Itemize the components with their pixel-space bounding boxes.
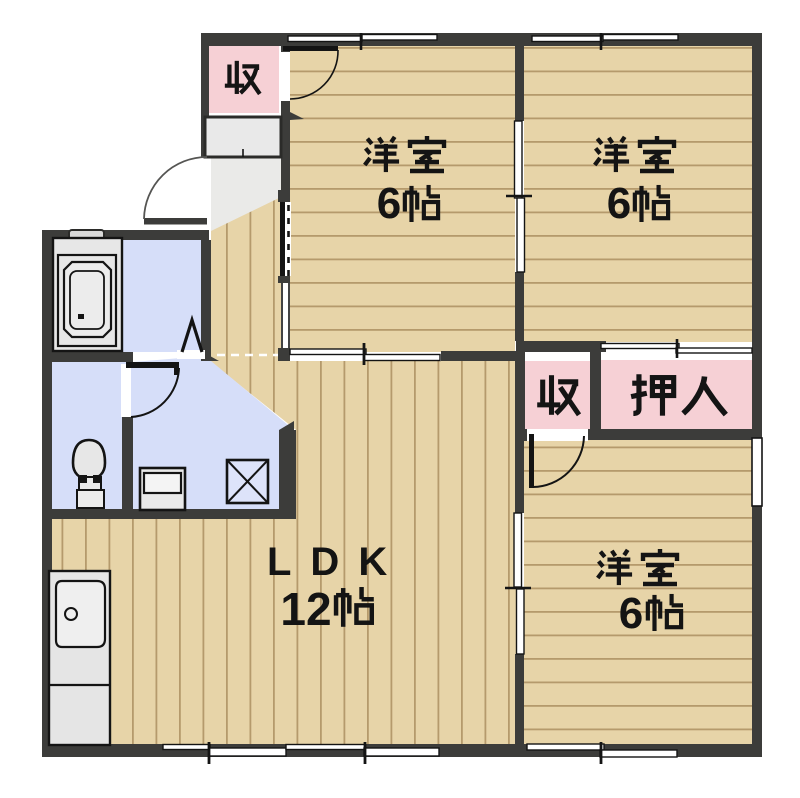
svg-text:12: 12 [280, 583, 331, 635]
svg-text:LDK: LDK [267, 540, 406, 584]
svg-text:6: 6 [377, 179, 401, 228]
svg-text:6: 6 [607, 179, 631, 228]
svg-text:6: 6 [619, 589, 643, 638]
